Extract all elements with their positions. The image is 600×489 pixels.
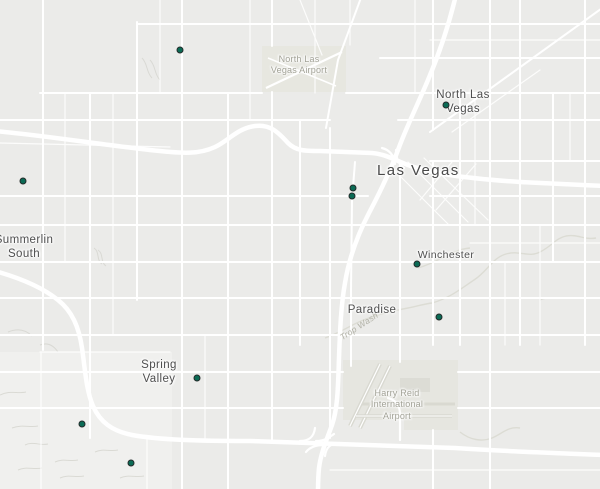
map-marker[interactable]	[79, 421, 86, 428]
map-marker[interactable]	[128, 460, 135, 467]
map-viewport[interactable]: Las Vegas North Las Vegas Summerlin Sout…	[0, 0, 600, 489]
map-marker[interactable]	[350, 185, 357, 192]
map-marker[interactable]	[414, 261, 421, 268]
map-marker[interactable]	[443, 102, 450, 109]
map-canvas	[0, 0, 600, 489]
map-marker[interactable]	[194, 375, 201, 382]
map-marker[interactable]	[20, 178, 27, 185]
map-marker[interactable]	[349, 193, 356, 200]
map-marker[interactable]	[177, 47, 184, 54]
map-marker[interactable]	[436, 314, 443, 321]
